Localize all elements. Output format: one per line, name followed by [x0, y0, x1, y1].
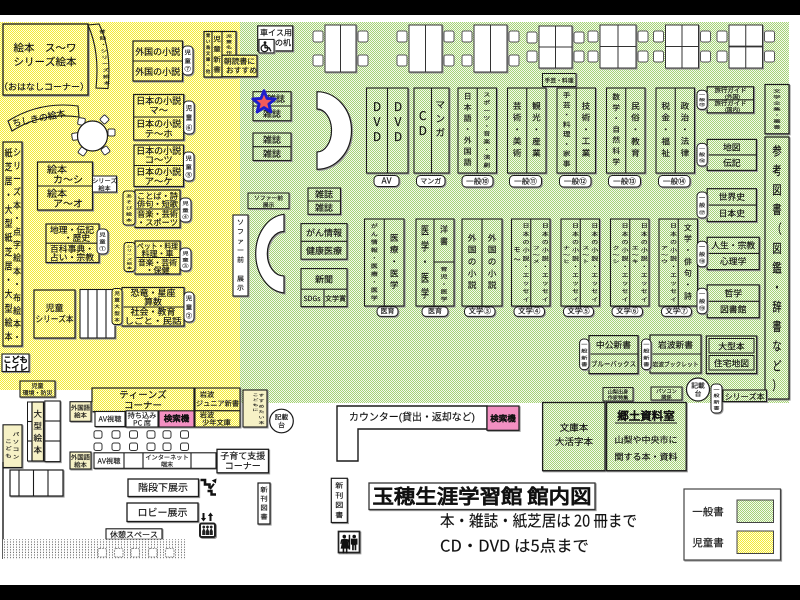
svg-text:中公新書: 中公新書 — [596, 338, 631, 351]
svg-text:文学全集・叢書: 文学全集・叢書 — [772, 88, 783, 130]
svg-text:一般⑬: 一般⑬ — [613, 176, 636, 187]
svg-text:PC 席: PC 席 — [133, 419, 151, 429]
svg-text:数学・自然科学: 数学・自然科学 — [611, 92, 622, 168]
svg-text:マンガ: マンガ — [420, 177, 441, 187]
svg-text:雑誌: 雑誌 — [315, 188, 333, 201]
svg-text:しごと・民話: しごと・民話 — [125, 315, 182, 327]
svg-text:岩波新書: 岩波新書 — [658, 338, 693, 351]
svg-text:児童②: 児童② — [185, 294, 194, 320]
svg-text:おすすめ: おすすめ — [226, 65, 257, 76]
svg-text:新刊図書: 新刊図書 — [259, 486, 269, 522]
svg-text:文学④: 文学④ — [518, 306, 541, 317]
svg-text:雑誌: 雑誌 — [315, 201, 333, 214]
svg-text:SDGs: SDGs — [303, 294, 321, 304]
svg-text:ア〜オ: ア〜オ — [53, 195, 83, 210]
svg-text:環境・防災: 環境・防災 — [22, 388, 52, 397]
svg-text:哲学: 哲学 — [724, 286, 742, 299]
svg-text:絵本: 絵本 — [74, 460, 87, 469]
svg-text:政治・法律: 政治・法律 — [679, 100, 691, 159]
svg-text:手芸・料理: 手芸・料理 — [545, 76, 574, 85]
svg-text:一般⑰: 一般⑰ — [698, 194, 707, 217]
svg-text:医療・医学: 医療・医学 — [388, 232, 400, 291]
svg-text:（おはなしコーナー）: （おはなしコーナー） — [0, 80, 89, 93]
svg-text:がん情報: がん情報 — [306, 226, 342, 239]
svg-text:文庫本: 文庫本 — [560, 420, 589, 434]
svg-text:一般⑭: 一般⑭ — [663, 176, 686, 187]
svg-text:日本の小説・エッセイ: 日本の小説・エッセイ — [540, 221, 550, 303]
svg-text:日本の小説・エッセイ: 日本の小説・エッセイ — [669, 221, 679, 303]
svg-text:一般⑲: 一般⑲ — [698, 290, 707, 312]
svg-text:洋書: 洋書 — [439, 224, 450, 248]
svg-text:マ〜: マ〜 — [149, 103, 168, 117]
svg-text:休憩スペース: 休憩スペース — [110, 529, 158, 540]
svg-text:台: 台 — [695, 388, 702, 398]
svg-text:あそび絵本: あそび絵本 — [125, 193, 134, 223]
svg-text:一般⑩: 一般⑩ — [466, 176, 489, 187]
svg-text:図書館: 図書館 — [720, 303, 747, 316]
svg-text:台: 台 — [278, 420, 285, 430]
svg-text:AV視聴: AV視聴 — [98, 457, 121, 467]
svg-text:日本の小説・エッセイ: 日本の小説・エッセイ — [590, 221, 600, 303]
svg-text:住宅地図: 住宅地図 — [714, 357, 749, 370]
svg-text:CD・DVD は5点まで: CD・DVD は5点まで — [440, 533, 589, 557]
svg-text:マンガ: マンガ — [433, 97, 447, 139]
svg-text:関係: 関係 — [661, 394, 672, 401]
svg-text:関する本・資料: 関する本・資料 — [614, 450, 677, 463]
svg-text:大型本: 大型本 — [718, 340, 745, 353]
svg-text:・スポーツ: ・スポーツ — [137, 217, 178, 229]
svg-text:ロビー展示: ロビー展示 — [138, 504, 188, 519]
svg-text:文学賞: 文学賞 — [325, 294, 346, 304]
svg-text:日本の小説・エッセイ: 日本の小説・エッセイ — [639, 221, 649, 303]
svg-text:大活字本: 大活字本 — [555, 434, 594, 448]
svg-text:絵本 ス〜ワ: 絵本 ス〜ワ — [14, 41, 77, 56]
svg-text:テ〜ホ: テ〜ホ — [145, 126, 173, 140]
svg-text:日本の小説・エッセイ: 日本の小説・エッセイ — [620, 221, 630, 303]
svg-text:作家特集: 作家特集 — [608, 395, 630, 402]
svg-text:端末: 端末 — [161, 460, 173, 469]
svg-text:ア〜ウ: ア〜ウ — [660, 245, 670, 265]
svg-text:児童①: 児童① — [98, 231, 107, 252]
svg-text:シリーズ本: シリーズ本 — [36, 313, 74, 325]
svg-text:シリーズ絵本: シリーズ絵本 — [126, 244, 134, 270]
svg-text:新刊図書: 新刊図書 — [334, 481, 345, 520]
svg-text:文学⑦: 文学⑦ — [665, 306, 688, 317]
svg-text:占い・宗教: 占い・宗教 — [50, 251, 94, 264]
svg-text:児童大型本: 児童大型本 — [113, 290, 121, 323]
svg-text:ナ〜ヒ: ナ〜ヒ — [562, 245, 572, 265]
svg-text:雑誌: 雑誌 — [263, 133, 281, 146]
svg-text:青い鳥文庫・他: 青い鳥文庫・他 — [205, 33, 211, 75]
svg-text:コーナー: コーナー — [225, 459, 261, 472]
svg-text:日本語・外国語: 日本語・外国語 — [462, 91, 473, 168]
svg-text:心理学: 心理学 — [720, 255, 747, 268]
svg-text:スポーツ・音楽・演劇: スポーツ・音楽・演劇 — [482, 91, 492, 169]
svg-text:山梨や中央市に: 山梨や中央市に — [614, 433, 677, 446]
svg-text:トイレ: トイレ — [3, 362, 28, 374]
svg-text:伝記: 伝記 — [723, 156, 741, 169]
svg-text:カ〜シ: カ〜シ — [53, 171, 83, 186]
svg-text:文学・俳句・詩: 文学・俳句・詩 — [682, 222, 693, 302]
svg-text:外国の小説: 外国の小説 — [486, 232, 498, 291]
svg-text:ク〜シ: ク〜シ — [611, 245, 621, 265]
svg-text:文学⑥: 文学⑥ — [616, 306, 639, 317]
svg-text:階段下展示: 階段下展示 — [138, 479, 188, 494]
svg-text:パソコン: パソコン — [11, 430, 21, 460]
svg-text:絵本: 絵本 — [98, 184, 111, 193]
svg-text:一般新書: 一般新書 — [580, 341, 589, 368]
svg-text:外国の小説: 外国の小説 — [466, 232, 478, 291]
svg-text:一般⑪: 一般⑪ — [514, 176, 537, 187]
svg-text:(国内): (国内) — [725, 106, 740, 114]
svg-text:技術・工業: 技術・工業 — [580, 100, 592, 159]
svg-text:外国の小説: 外国の小説 — [135, 44, 181, 58]
svg-text:展示: 展示 — [263, 200, 275, 209]
svg-text:医育: 医育 — [428, 307, 442, 317]
svg-text:人生・宗教: 人生・宗教 — [711, 239, 755, 252]
svg-text:シリーズ本: シリーズ本 — [725, 392, 765, 403]
svg-text:絵本: 絵本 — [74, 411, 87, 420]
svg-text:シリーズ絵本: シリーズ絵本 — [14, 55, 77, 70]
svg-text:カウンター(貸出・返却など): カウンター(貸出・返却など) — [349, 410, 475, 425]
svg-text:地図: 地図 — [723, 140, 741, 153]
svg-text:医育: 医育 — [381, 307, 395, 317]
svg-text:本・雑誌・紙芝居は 20 冊まで: 本・雑誌・紙芝居は 20 冊まで — [440, 508, 637, 532]
svg-text:民俗・教育: 民俗・教育 — [629, 100, 641, 159]
svg-text:D: D — [373, 128, 381, 145]
svg-text:モ〜: モ〜 — [512, 245, 522, 265]
svg-text:がん情報・医療・医学: がん情報・医療・医学 — [369, 222, 379, 302]
svg-text:郷土資料室: 郷土資料室 — [617, 408, 675, 424]
svg-text:フ〜メ: フ〜メ — [531, 245, 541, 265]
svg-text:文学③: 文学③ — [469, 306, 492, 317]
svg-text:児童③: 児童③ — [181, 250, 190, 269]
svg-text:紙芝居・大型紙芝居・大型絵本: 紙芝居・大型紙芝居・大型絵本 — [3, 146, 14, 344]
svg-text:外国の小説: 外国の小説 — [135, 64, 181, 78]
svg-text:一般⑯: 一般⑯ — [698, 145, 707, 164]
svg-text:ス〜ト: ス〜ト — [581, 245, 591, 265]
svg-text:芸術・美術: 芸術・美術 — [511, 100, 523, 159]
svg-text:ジュニア新書: ジュニア新書 — [196, 399, 239, 409]
svg-text:D: D — [419, 122, 427, 139]
svg-text:児童名作: 児童名作 — [225, 33, 234, 55]
svg-text:AV: AV — [381, 175, 391, 187]
svg-text:玉穂生涯学習館 館内図: 玉穂生涯学習館 館内図 — [373, 481, 592, 510]
svg-text:観光・産業: 観光・産業 — [530, 100, 542, 159]
svg-text:コーナー: コーナー — [124, 398, 162, 412]
svg-text:ア〜ケ: ア〜ケ — [145, 174, 173, 188]
svg-text:ブルーバックス: ブルーバックス — [591, 360, 636, 370]
svg-text:・保健: ・保健 — [146, 265, 170, 276]
svg-text:日本の小説・エッセイ: 日本の小説・エッセイ — [571, 221, 581, 303]
svg-text:エ〜キ: エ〜キ — [630, 245, 640, 265]
svg-text:育児・医学: 育児・医学 — [439, 266, 449, 303]
svg-text:児童書: 児童書 — [692, 536, 724, 551]
svg-text:検索機: 検索機 — [490, 413, 516, 425]
svg-text:新聞: 新聞 — [315, 273, 333, 286]
svg-text:雑誌: 雑誌 — [263, 147, 281, 160]
svg-text:大型絵本: 大型絵本 — [32, 408, 44, 456]
svg-text:手芸・料理・家事: 手芸・料理・家事 — [561, 91, 572, 169]
svg-text:岩波ブックレット: 岩波ブックレット — [653, 360, 699, 369]
svg-text:日本史: 日本史 — [719, 207, 746, 220]
svg-text:すすめたい本: すすめたい本 — [257, 392, 266, 425]
svg-text:参考図書（図鑑・辞書など）: 参考図書（図鑑・辞書など） — [770, 140, 784, 394]
svg-text:児童⑥: 児童⑥ — [184, 103, 193, 132]
svg-text:健康医療: 健康医療 — [306, 244, 342, 257]
svg-text:児童④: 児童④ — [181, 200, 190, 220]
svg-text:一般⑮: 一般⑮ — [698, 92, 707, 108]
svg-text:一般新書: 一般新書 — [712, 386, 721, 411]
svg-text:児童⑤: 児童⑤ — [184, 154, 193, 179]
svg-text:D: D — [394, 128, 402, 145]
svg-text:児童⑦: 児童⑦ — [183, 48, 192, 73]
svg-text:の机: の机 — [275, 38, 291, 49]
svg-text:医学・医学: 医学・医学 — [420, 223, 431, 302]
svg-text:検索機: 検索機 — [164, 413, 190, 425]
svg-text:世界史: 世界史 — [719, 190, 746, 203]
svg-text:税金・福祉: 税金・福祉 — [660, 100, 672, 159]
svg-text:日本の小説・エッセイ: 日本の小説・エッセイ — [521, 221, 531, 303]
svg-text:文学⑤: 文学⑤ — [567, 306, 590, 317]
svg-text:AV視聴: AV視聴 — [99, 415, 122, 425]
svg-text:児童新書: 児童新書 — [212, 34, 223, 75]
svg-text:ソファー前 展示: ソファー前 展示 — [236, 218, 246, 293]
svg-text:一般新書: 一般新書 — [642, 341, 651, 368]
svg-text:少年文庫: 少年文庫 — [202, 418, 231, 428]
svg-text:一般⑱: 一般⑱ — [698, 243, 707, 265]
svg-text:一般⑫: 一般⑫ — [564, 176, 587, 187]
svg-text:一般書: 一般書 — [692, 505, 724, 520]
